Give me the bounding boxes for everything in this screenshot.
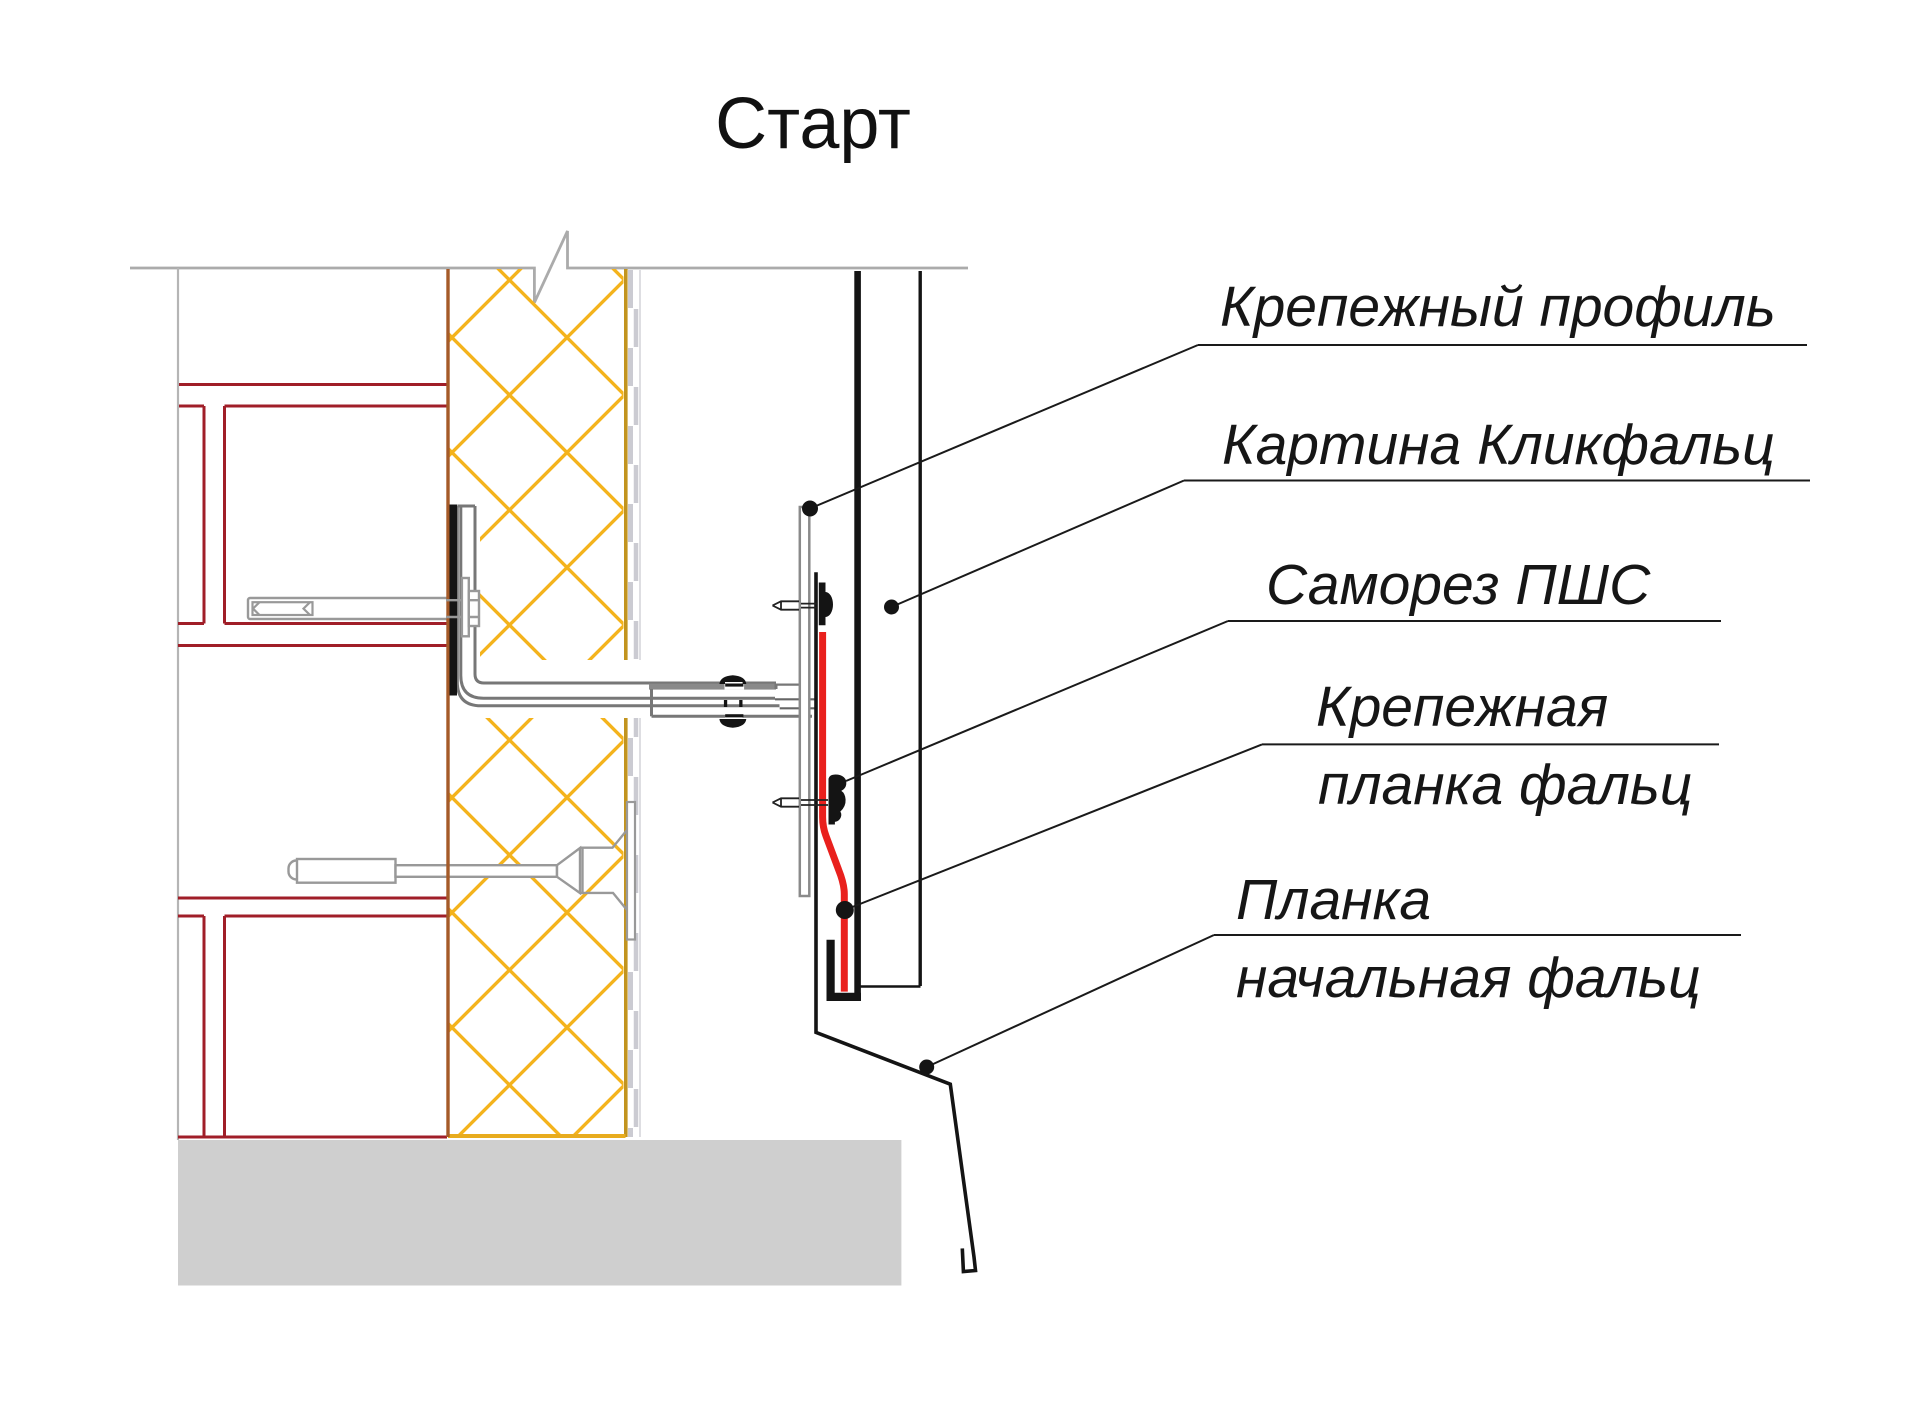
svg-text:Крепежный профиль: Крепежный профиль <box>1220 275 1776 339</box>
svg-text:Картина Кликфальц: Картина Кликфальц <box>1222 413 1775 477</box>
svg-text:планка фальц: планка фальц <box>1318 753 1692 817</box>
svg-text:Планка: Планка <box>1236 868 1431 932</box>
svg-text:Старт: Старт <box>715 84 911 164</box>
svg-text:начальная фальц: начальная фальц <box>1236 946 1701 1010</box>
svg-text:Саморез ПШС: Саморез ПШС <box>1266 553 1651 617</box>
svg-text:Крепежная: Крепежная <box>1316 675 1608 739</box>
